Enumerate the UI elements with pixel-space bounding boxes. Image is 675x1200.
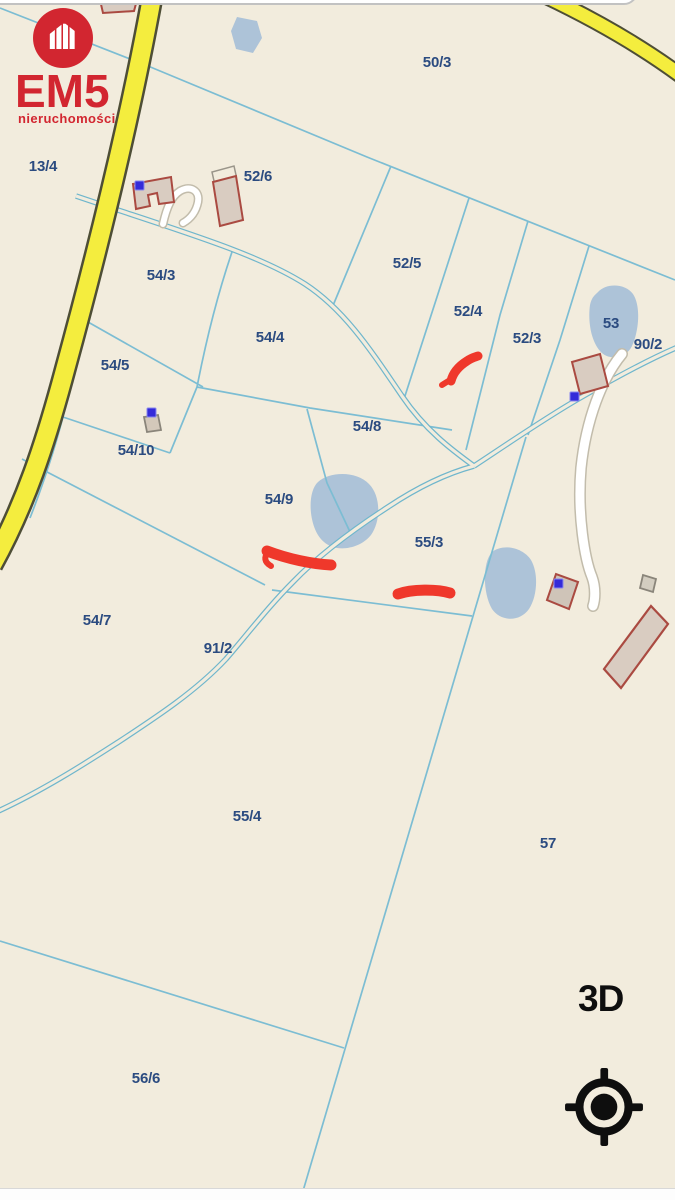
parcel-label-52-6: 52/6 — [244, 168, 272, 185]
house-icon — [41, 16, 85, 60]
crosshair-locate-icon — [563, 1066, 645, 1148]
parcel-label-54-10: 54/10 — [118, 442, 155, 459]
parcel-label-54-9: 54/9 — [265, 491, 293, 508]
map-background — [0, 0, 675, 1200]
parcel-label-52-4: 52/4 — [454, 303, 483, 320]
bottom-edge-bar — [0, 1188, 675, 1200]
pond-parcel-55-3 — [485, 547, 536, 618]
3d-view-button[interactable]: 3D — [578, 978, 648, 1022]
parcel-label-54-3: 54/3 — [147, 267, 175, 284]
blue-square-marker-icon — [570, 392, 579, 401]
parcel-label-57: 57 — [540, 835, 556, 852]
parcel-label-53: 53 — [603, 315, 619, 332]
map-view: 50/3 13/4 52/6 54/3 52/5 52/4 52/3 53 90… — [0, 0, 675, 1200]
search-bar[interactable] — [0, 0, 638, 5]
blue-square-marker-icon — [554, 579, 563, 588]
parcel-label-54-5: 54/5 — [101, 357, 129, 374]
parcel-label-52-5: 52/5 — [393, 255, 421, 272]
parcel-label-55-3: 55/3 — [415, 534, 443, 551]
map-canvas[interactable]: 50/3 13/4 52/6 54/3 52/5 52/4 52/3 53 90… — [0, 0, 675, 1200]
blue-square-marker-icon — [135, 181, 144, 190]
parcel-label-54-8: 54/8 — [353, 418, 381, 435]
logo-brand-text: EM5 — [15, 64, 155, 118]
parcel-label-91-2: 91/2 — [204, 640, 232, 657]
parcel-label-54-7: 54/7 — [83, 612, 111, 629]
locate-button[interactable] — [563, 1066, 645, 1148]
parcel-label-55-4: 55/4 — [233, 808, 262, 825]
highlight-mark — [398, 590, 450, 594]
parcel-label-13-4: 13/4 — [29, 158, 58, 175]
logo-circle — [33, 8, 93, 68]
highlight-mark — [442, 380, 450, 385]
logo-tagline-text: nieruchomości — [18, 111, 158, 126]
building-footprint — [640, 575, 656, 592]
parcel-label-50-3: 50/3 — [423, 54, 451, 71]
parcel-label-52-3: 52/3 — [513, 330, 541, 347]
parcel-label-90-2: 90/2 — [634, 336, 662, 353]
parcel-label-54-4: 54/4 — [256, 329, 285, 346]
parcel-label-56-6: 56/6 — [132, 1070, 160, 1087]
blue-square-marker-icon — [147, 408, 156, 417]
building-footprint — [144, 415, 161, 432]
